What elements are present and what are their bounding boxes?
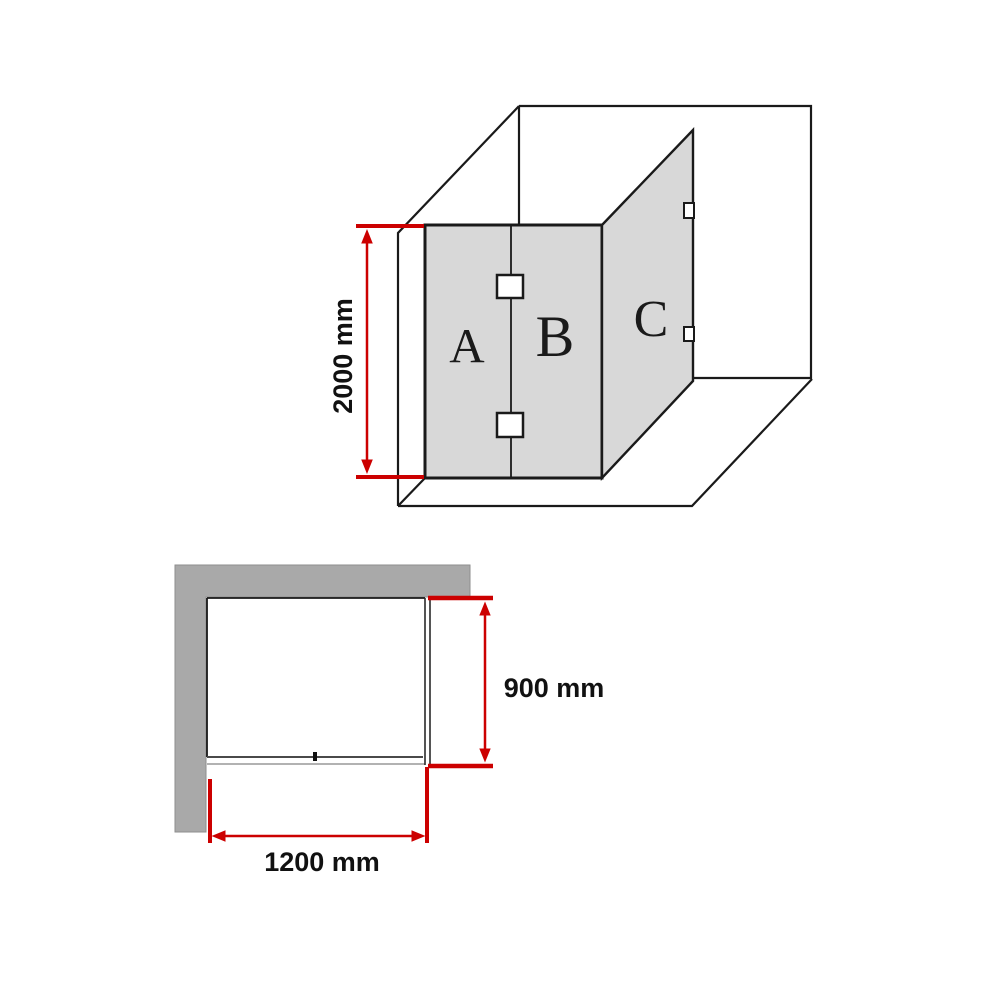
width-dimension: 1200 mm [210, 767, 427, 877]
height-dimension-label: 2000 mm [328, 298, 358, 414]
page: A B C 2000 mm [0, 0, 1000, 1000]
enclosure-outline [207, 598, 430, 765]
arrowhead-left-icon [212, 830, 226, 842]
depth-dimension: 900 mm [428, 598, 604, 766]
panel-c-label: C [634, 291, 669, 348]
hinge-top-icon [497, 275, 523, 298]
height-dimension: 2000 mm [328, 226, 424, 477]
panel-c-bracket-bottom-icon [684, 327, 694, 341]
arrowhead-right-icon [412, 830, 426, 842]
shower-screen-diagram: A B C 2000 mm [0, 0, 1000, 1000]
plan-view: 900 mm 1200 mm [175, 565, 604, 877]
arrowhead-down-icon [479, 749, 490, 763]
tray-wall-edges [207, 598, 425, 757]
panel-c-bracket-top-icon [684, 203, 694, 218]
arrowhead-down-icon [361, 460, 373, 475]
panel-b-label: B [536, 304, 575, 369]
arrowhead-up-icon [361, 229, 373, 244]
hinge-bottom-icon [497, 413, 523, 437]
width-dimension-label: 1200 mm [264, 847, 380, 877]
isometric-view: A B C 2000 mm [328, 106, 812, 506]
panel-a-label: A [449, 318, 485, 373]
depth-dimension-label: 900 mm [504, 673, 605, 703]
glass-panels: A B C [425, 130, 694, 478]
arrowhead-up-icon [479, 602, 490, 616]
screen-joint-tick [313, 752, 317, 761]
